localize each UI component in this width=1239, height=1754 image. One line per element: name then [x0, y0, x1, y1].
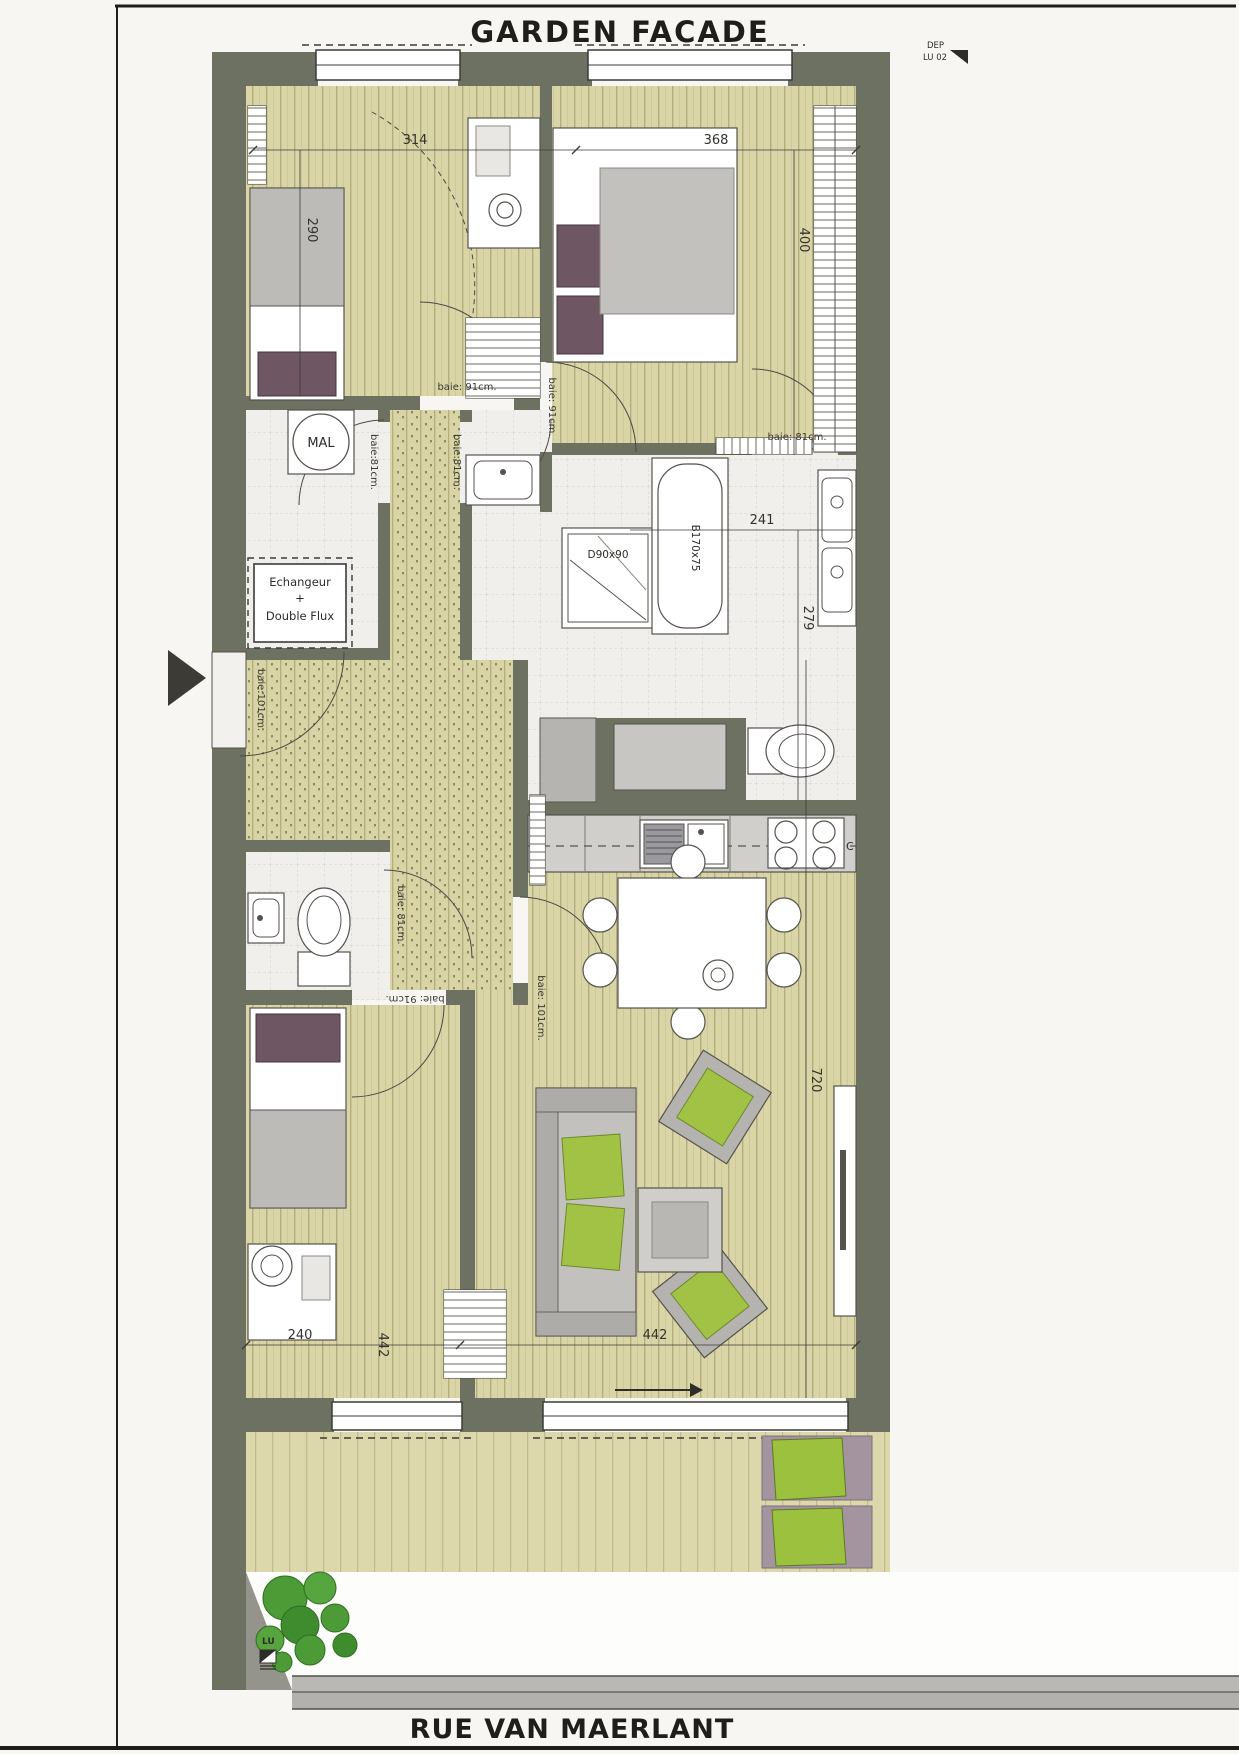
street-title: RUE VAN MAERLANT — [410, 1714, 735, 1745]
floor-plan-page: GARDEN FACADE DEP LU 02 — [0, 0, 1239, 1754]
bathtub: B170x75 — [652, 458, 728, 634]
single-bed — [250, 188, 344, 400]
hvac-unit: Echangeur + Double Flux — [248, 558, 352, 648]
shower: D90x90 — [562, 528, 654, 628]
chair — [671, 1005, 705, 1039]
chair — [767, 898, 801, 932]
rug — [600, 168, 734, 314]
dim-bedroom1-width: 314 — [403, 133, 428, 148]
chair — [583, 898, 617, 932]
washbasin — [466, 455, 540, 505]
hvac-label-1: Echangeur — [269, 575, 331, 589]
label-entrance-door: baie:101cm. — [255, 669, 266, 731]
floor-plan-svg: GARDEN FACADE DEP LU 02 — [0, 0, 1239, 1754]
dim-bedroom2-depth: 400 — [796, 228, 811, 253]
dim-living-width: 442 — [643, 1328, 668, 1343]
desk — [248, 1244, 336, 1340]
sheet-dep-label: DEP — [927, 41, 944, 51]
planter-shrub — [772, 1508, 846, 1566]
sheet-lu02-label: LU 02 — [923, 53, 947, 63]
window-top-right — [575, 45, 805, 80]
coffee-table — [638, 1188, 722, 1272]
label-hall-door: baie:81cm. — [451, 434, 462, 490]
sofa — [536, 1088, 636, 1336]
garden-path — [246, 1572, 1239, 1676]
sheet-lu-label: LU — [262, 1637, 275, 1647]
label-wc-door: baie: 81cm. — [395, 885, 406, 944]
entry-hall-floor — [246, 660, 513, 840]
chair — [767, 953, 801, 987]
garden-facade-title: GARDEN FACADE — [470, 15, 769, 49]
sheet-lu-icon — [260, 1650, 276, 1669]
dim-living-length: 720 — [808, 1068, 823, 1093]
bathtub-label: B170x75 — [689, 525, 701, 572]
dim-bathroom-depth: 279 — [800, 606, 815, 631]
dim-bedroom3-width: 240 — [288, 1328, 313, 1343]
dim-bathroom-width: 241 — [750, 513, 775, 528]
dim-bedroom3-length: 442 — [375, 1333, 390, 1358]
hvac-label-3: Double Flux — [266, 609, 335, 623]
cooktop-label: C — [846, 840, 854, 853]
label-bathroom-top-door: baie: 81cm. — [767, 432, 826, 443]
chair — [671, 845, 705, 879]
chair — [583, 953, 617, 987]
toilet — [298, 888, 350, 986]
dresser — [468, 118, 540, 248]
double-bed — [553, 128, 737, 362]
entrance-opening — [212, 652, 246, 748]
washing-machine: MAL — [288, 410, 354, 474]
sidewalk — [292, 1676, 1239, 1709]
planter-shrub — [772, 1438, 846, 1500]
tv-bench — [834, 1086, 856, 1316]
label-bedroom1-door: baie: 91cm. — [437, 382, 496, 393]
dim-bedroom1-depth: 290 — [304, 218, 319, 243]
dim-bedroom2-width: 368 — [704, 133, 729, 148]
cooktop: C — [768, 818, 854, 869]
toilet — [748, 725, 834, 777]
label-bedroom3-door: baie: 91cm. — [385, 993, 444, 1004]
label-bedroom2-door: baie: 91cm. — [546, 377, 557, 436]
hvac-label-2: + — [295, 591, 305, 605]
vanity-double-sink — [818, 470, 856, 626]
wardrobe — [814, 106, 856, 452]
dining-table — [618, 878, 766, 1008]
corridor-floor — [390, 410, 460, 660]
hand-basin — [248, 893, 284, 943]
window-top-left — [302, 45, 472, 80]
technical-shaft — [540, 718, 746, 802]
washing-machine-label: MAL — [307, 436, 335, 451]
single-bed — [250, 1008, 346, 1208]
shower-label: D90x90 — [587, 549, 628, 561]
label-laundry-door: baie:81cm. — [368, 434, 379, 490]
label-living-door: baie: 101cm. — [535, 975, 546, 1040]
